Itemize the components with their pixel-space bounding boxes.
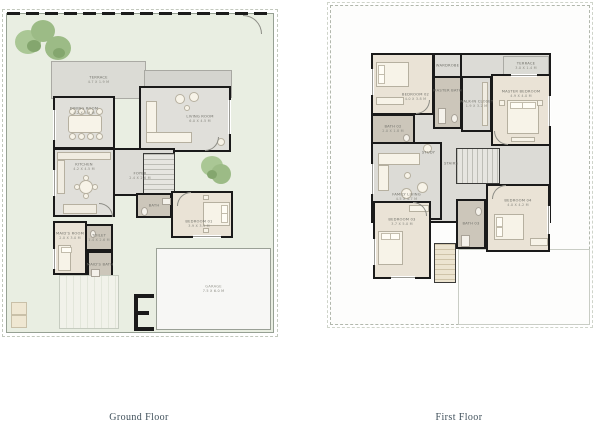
room-label: BEDROOM 04 4.0 X 4.2 M [487,198,549,207]
nightstand [537,100,543,106]
porch-wall [134,294,154,298]
room-label: BEDROOM 02 4.0 X 3.8 M [393,92,438,101]
door-arc [416,100,430,114]
sofa [146,132,192,143]
chair [78,133,85,140]
room-label: STUDY [408,151,450,156]
window [371,164,374,194]
dining-table [68,115,102,133]
terrace-first: TERRACE 3.0 X 1.4 M [503,56,549,76]
window [511,74,537,77]
chair [96,133,103,140]
room-label: BEDROOM 01 3.9 X 3.3 M [167,219,231,228]
toilet-fixture [451,114,458,123]
door-arc [205,137,219,151]
maids-bath: MAID'S BATH [87,251,113,278]
master-bedroom: MASTER BEDROOM 4.9 X 4.0 M [491,74,551,146]
dining-room: DINING ROOM 4.2 X 3.9 M [53,96,115,149]
chair [92,184,98,190]
living-room: LIVING ROOM 6.0 X 4.5 M [139,86,231,152]
room-label: LIVING ROOM 6.0 X 4.5 M [170,114,231,123]
shower-fixture [91,269,100,277]
room-label: WARDROBE [427,63,467,68]
nightstand [203,195,209,200]
room-label: TERRACE 3.0 X 1.4 M [500,61,552,70]
walk-in-closet: WALK-IN CLOSET 1.9 X 3.2 M [461,76,492,132]
nightstand [203,228,209,233]
first-floor-plot: TERRACE 3.0 X 1.4 M BEDROOM 02 4.0 X 3.8… [330,5,590,325]
kitchen-table [79,180,93,194]
window [53,170,56,196]
door-arc [177,192,191,206]
kitchen-island [63,204,97,214]
shower-fixture [461,235,470,247]
bedroom-04: BEDROOM 04 4.0 X 4.2 M [486,184,550,252]
toilet-fixture [403,134,410,142]
paved-patio [59,275,119,329]
kitchen: KITCHEN 4.2 X 4.5 M [53,148,115,217]
room-label: FOYER 2.4 X 2.6 M [107,172,173,181]
kitchen-counter [57,152,111,160]
chair [83,193,89,199]
stairs-label: STAIRS [439,162,464,167]
room-label: FAMILY LIVING 4.5 X 4.7 M [373,193,439,202]
room-label: MASTER BEDROOM 4.9 X 4.0 M [491,89,551,98]
door-arc [492,185,506,199]
foyer-hall: FOYER 2.4 X 2.6 M [113,148,175,196]
room-label: WALK-IN CLOSET 1.9 X 3.2 M [456,99,498,108]
ground-floor-plot: TERRACE 4.7 X 1.9 M LIVING ROOM 6.0 X 4.… [6,13,274,333]
bed [378,231,403,265]
bed [376,62,409,87]
armchair [175,94,185,104]
room-label: TERRACE 4.7 X 1.9 M [57,75,139,84]
door-arc [99,203,113,217]
bed [58,245,71,271]
bedroom-02: BEDROOM 02 4.0 X 3.8 M [371,53,434,115]
bedroom-01: BEDROOM 01 3.9 X 3.3 M [171,191,233,238]
coffee-table [184,105,190,111]
first-floor-caption: First Floor [330,412,588,423]
planter [11,302,27,315]
toilet-room: TOILET 1.4 X 2.6 M [85,224,113,251]
floor-plan-sheet: TERRACE 4.7 X 1.9 M LIVING ROOM 6.0 X 4.… [0,0,600,432]
bed [507,100,539,134]
room-label: BATH 02 2.0 X 1.8 M [368,124,418,133]
window [373,239,376,265]
chair [69,133,76,140]
chair [87,133,94,140]
room-label: TOILET 1.4 X 2.6 M [79,233,119,242]
room-label: DINING ROOM 4.2 X 3.9 M [54,106,115,115]
porch-wall [134,327,154,331]
tree-icon [199,152,233,190]
window [53,249,56,269]
roof-terrace [458,249,590,325]
shower-fixture [438,108,446,124]
room-label: KITCHEN 4.2 X 4.5 M [54,162,115,171]
stair-void [434,243,456,283]
porch-wall [134,311,149,315]
window [193,235,221,238]
armchair [189,92,199,102]
bed [494,214,524,240]
armchair [417,182,428,193]
door-arc [494,131,508,145]
tree-icon [15,20,75,72]
bench [511,137,535,142]
garage: GARAGE 7.5 X 6.0 M [156,248,271,330]
room-label: BATH 03 [451,222,492,227]
window [548,96,551,126]
room-label: BATH [132,203,177,208]
window [547,206,550,234]
ground-floor-caption: Ground Floor [6,412,272,423]
room-label: GARAGE 7.5 X 6.0 M [166,284,261,293]
window [391,276,415,279]
boundary-fence [7,12,273,15]
bath-02: BATH 02 2.0 X 1.8 M [371,114,415,144]
window [371,69,374,95]
sofa [378,165,389,191]
gate-door-arc [243,15,262,34]
toilet-fixture [475,207,482,216]
planter [11,315,27,328]
room-label: BEDROOM 03 3.7 X 5.0 M [373,218,431,227]
bedroom-03: BEDROOM 03 3.7 X 5.0 M [373,201,431,279]
desk [530,238,548,246]
room-label: MASTER BATH [427,88,467,93]
chair [83,175,89,181]
guest-bath: BATH [136,193,172,218]
coffee-table [404,172,411,179]
bath-03: BATH 03 [456,199,486,249]
nightstand [499,100,505,106]
room-label: MAID'S BATH [81,262,119,267]
wardrobe: WARDROBE [433,53,462,78]
chair [74,184,80,190]
